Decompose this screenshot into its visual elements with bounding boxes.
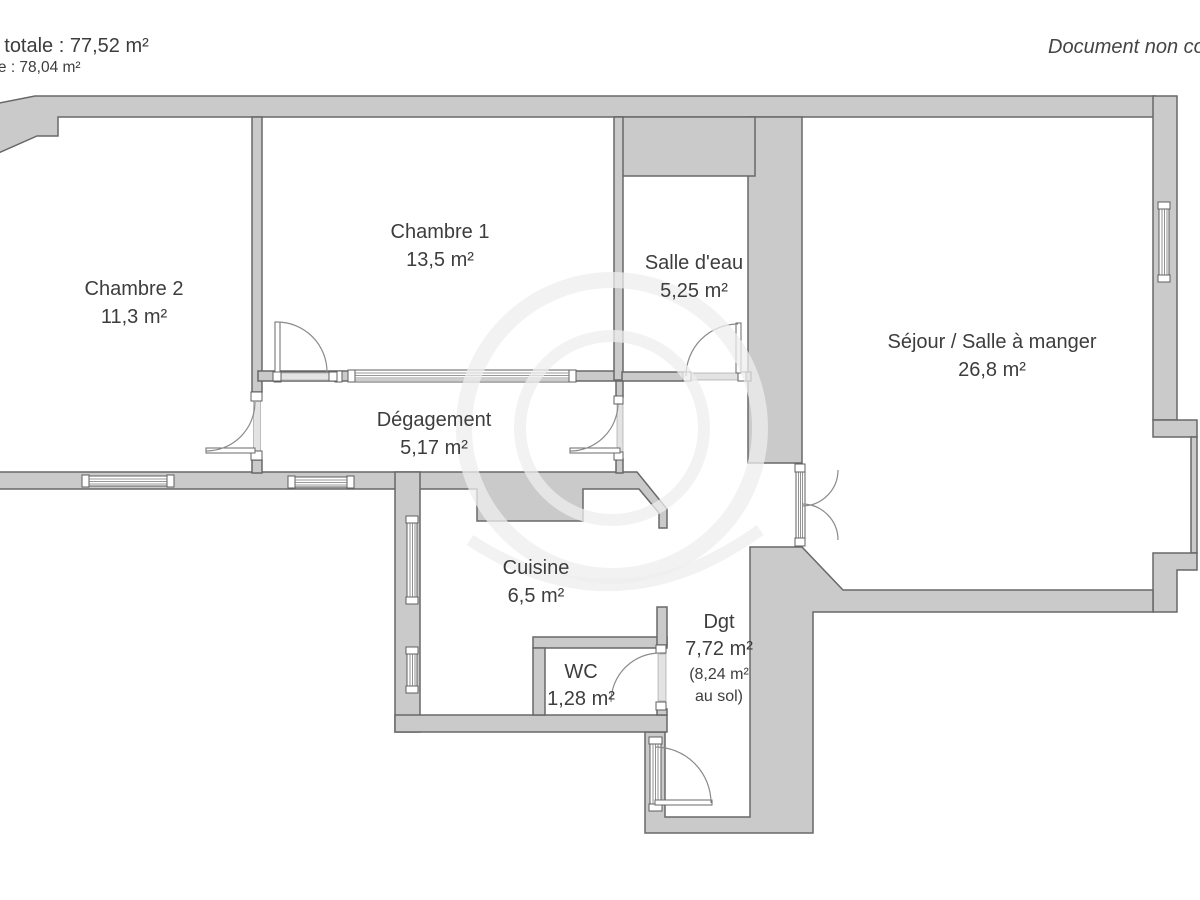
wall-top: [0, 96, 1155, 155]
wall-chambre2-chambre1: [252, 117, 262, 392]
window-cuisine-1: [406, 516, 418, 604]
wall-bay-outer: [1191, 437, 1197, 553]
arc-chambre1-door: [277, 322, 327, 372]
label-cuisine-area: 6,5 m²: [508, 585, 565, 607]
wall-deg-right-upper: [616, 381, 623, 397]
leaf-entry-door: [655, 800, 712, 805]
arc-degagement-door: [570, 403, 618, 451]
wall-salle-deau-bottom-left: [622, 372, 684, 381]
label-dgt-area-note-1: (8,24 m²: [689, 666, 749, 683]
label-chambre2-area: 11,3 m²: [101, 306, 168, 328]
label-degagement-area: 5,17 m²: [400, 437, 468, 459]
wall-deg-right-lower: [616, 459, 623, 473]
label-wc-area: 1,28 m²: [547, 688, 615, 710]
wall-above-salle-deau: [615, 117, 755, 176]
label-chambre2-name: Chambre 2: [85, 278, 184, 300]
arc-chambre2-door: [206, 402, 255, 451]
floor-plan-page: Chambre 2 11,3 m² Chambre 1 13,5 m² Sall…: [0, 0, 1200, 900]
header: cie loi Carrez totale : 77,52 m² e au so…: [0, 35, 1200, 76]
door-sejour-double-leaf: [796, 472, 805, 538]
label-dgt-area: 7,72 m²: [685, 638, 753, 660]
label-dgt-area-note-2: au sol): [695, 688, 743, 705]
label-wc-name: WC: [564, 661, 597, 683]
window-degagement-bottom: [288, 476, 354, 488]
label-salle-deau-name: Salle d'eau: [645, 252, 743, 274]
wall-wc-right-upper: [657, 607, 667, 645]
arc-sejour-door-upper: [802, 470, 838, 506]
threshold-wc-door: [658, 654, 666, 701]
label-chambre1-name: Chambre 1: [391, 221, 490, 243]
label-sejour-area: 26,8 m²: [958, 359, 1026, 381]
header-disclaimer: Document non contractuel: [1048, 36, 1200, 58]
label-chambre1-area: 13,5 m²: [406, 249, 474, 271]
walls: [0, 96, 1197, 833]
window-chambre2: [82, 475, 174, 487]
wall-bay-top: [1153, 420, 1197, 437]
label-dgt-name: Dgt: [703, 611, 735, 633]
window-sejour: [1158, 202, 1170, 282]
label-degagement-name: Dégagement: [377, 409, 492, 431]
wall-bay-bottom: [1153, 553, 1197, 612]
floor-plan-canvas: Chambre 2 11,3 m² Chambre 1 13,5 m² Sall…: [0, 0, 1200, 900]
watermark: [464, 280, 760, 585]
header-carrez-total: cie loi Carrez totale : 77,52 m²: [0, 35, 149, 57]
wall-cuisine-bottom: [395, 715, 667, 732]
wall-chambre2-deg-lower: [252, 460, 262, 473]
label-sejour-name: Séjour / Salle à manger: [887, 331, 1096, 353]
window-cuisine-2: [406, 647, 418, 693]
header-floor-total: e au sol totale : 78,04 m²: [0, 59, 81, 76]
wall-wc-top: [533, 637, 667, 648]
label-cuisine-name: Cuisine: [503, 557, 570, 579]
arc-sejour-door-lower: [802, 504, 838, 540]
label-salle-deau-area: 5,25 m²: [660, 280, 728, 302]
wall-wc-left: [533, 648, 545, 715]
leaf-chambre1-door: [275, 322, 280, 372]
door-entry-leaf: [650, 744, 661, 804]
threshold-chambre1-door: [281, 373, 329, 380]
threshold-salle-deau-door: [691, 373, 738, 380]
arc-wc-door: [611, 653, 660, 702]
